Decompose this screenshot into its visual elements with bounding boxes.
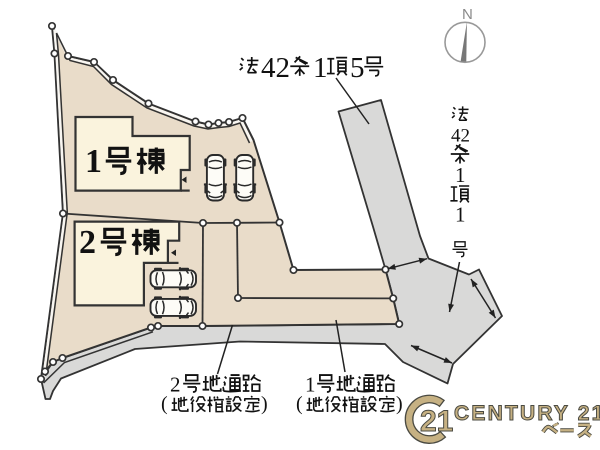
svg-text:): ) [261,393,268,415]
svg-text:): ) [396,393,403,415]
svg-text:5: 5 [350,52,365,84]
svg-text:(: ( [161,393,168,415]
svg-text:42: 42 [451,126,470,147]
svg-text:N: N [462,6,473,23]
svg-text:1: 1 [305,373,316,397]
svg-text:(: ( [296,393,303,415]
svg-text:2: 2 [170,373,181,397]
svg-text:1: 1 [313,52,328,84]
svg-text:1: 1 [455,163,466,187]
svg-text:42: 42 [261,52,290,84]
svg-text:2: 2 [79,224,96,261]
svg-text:CENTURY 21: CENTURY 21 [454,402,600,425]
svg-text:1: 1 [455,203,466,227]
svg-text:21: 21 [420,405,453,438]
svg-text:1: 1 [85,143,102,180]
